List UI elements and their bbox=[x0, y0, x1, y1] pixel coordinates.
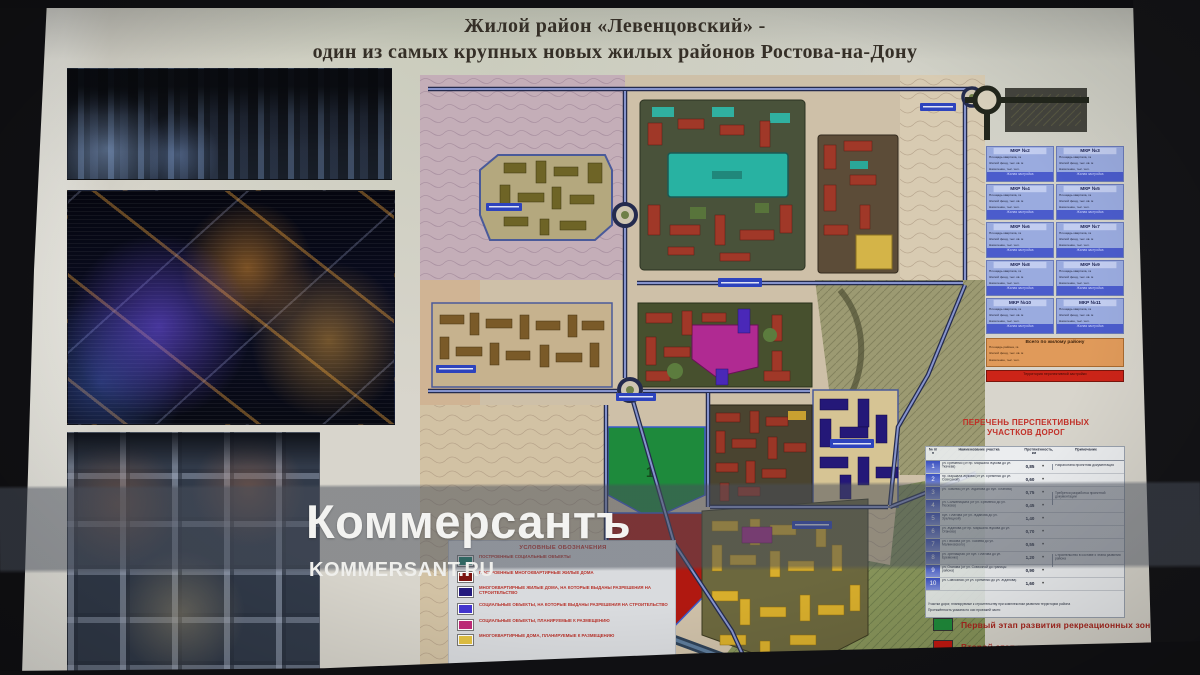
mkr-card: МКР №7Площадь квартала, гаЖилой фонд, ты… bbox=[1056, 222, 1124, 258]
poster-title-line2: один из самых крупных новых жилых районо… bbox=[225, 39, 1005, 65]
mkr-card-footer: Жилая застройка bbox=[987, 248, 1053, 257]
map-quarter-west bbox=[432, 303, 612, 387]
map-quarter-northeast bbox=[818, 135, 898, 273]
map-quarter-north-central bbox=[640, 100, 805, 270]
road-row-marker: • bbox=[1042, 578, 1050, 590]
mkr-summary-line: Жилой фонд, тыс. кв. м bbox=[989, 352, 1121, 355]
mkr-card-body: Площадь квартала, гаЖилой фонд, тыс. кв.… bbox=[987, 155, 1053, 172]
mkr-card-title: МКР №5 bbox=[1064, 186, 1117, 192]
mkr-card-footer: Жилая застройка bbox=[1057, 324, 1123, 333]
mkr-card: МКР №9Площадь квартала, гаЖилой фонд, ты… bbox=[1056, 260, 1124, 296]
map-quarter-northwest-built bbox=[480, 155, 612, 240]
road-note: Разработана проектная документация bbox=[1052, 464, 1124, 470]
road-row-name: ул. Совхозная (от ул. Еременко до ул. Жд… bbox=[940, 578, 1018, 590]
mkr-card-title: МКР №7 bbox=[1064, 224, 1117, 230]
legend-item: МНОГОКВАРТИРНЫЕ ЖИЛЫЕ ДОМА, НА КОТОРЫЕ В… bbox=[457, 586, 669, 600]
road-row-marker: • bbox=[1042, 461, 1050, 473]
mkr-card-title: МКР №10 bbox=[994, 300, 1047, 306]
mkr-summary-line: Население, тыс. чел. bbox=[989, 359, 1121, 362]
mkr-card-footer: Жилая застройка bbox=[1057, 248, 1123, 257]
legend-label: СОЦИАЛЬНЫЕ ОБЪЕКТЫ, НА КОТОРЫЕ ВЫДАНЫ РА… bbox=[479, 603, 669, 610]
photo-of-presentation-screen: Жилой район «Левенцовский» - один из сам… bbox=[0, 0, 1200, 675]
mkr-card-title: МКР №11 bbox=[1064, 300, 1117, 306]
mkr-card-title: МКР №3 bbox=[1064, 148, 1117, 154]
legend-label: СОЦИАЛЬНЫЕ ОБЪЕКТЫ, ПЛАНИРУЕМЫЕ К РАЗМЕЩ… bbox=[479, 619, 661, 626]
mkr-card-footer: Жилая застройка bbox=[987, 324, 1053, 333]
map-corner-junction bbox=[963, 70, 1095, 140]
roads-table-footnotes: Участки дорог, планируемые к строительст… bbox=[928, 603, 1122, 616]
mkr-summary-card: Всего по жилому району Площадь района, г… bbox=[986, 338, 1124, 367]
mkr-card: МКР №5Площадь квартала, гаЖилой фонд, ты… bbox=[1056, 184, 1124, 220]
roads-column-header: Примечание bbox=[1064, 447, 1107, 455]
masterplan-poster: Жилой район «Левенцовский» - один из сам… bbox=[0, 0, 1200, 675]
legend-swatch bbox=[457, 619, 474, 631]
mkr-card-body: Площадь квартала, гаЖилой фонд, тыс. кв.… bbox=[987, 307, 1053, 324]
mkr-cards-panel: МКР №2Площадь квартала, гаЖилой фонд, ты… bbox=[986, 146, 1126, 382]
roads-column-header: Наименование участка bbox=[956, 447, 1003, 455]
legend-label: МНОГОКВАРТИРНЫЕ ДОМА, ПЛАНИРУЕМЫЕ К РАЗМ… bbox=[479, 634, 667, 641]
poster-title: Жилой район «Левенцовский» - один из сам… bbox=[225, 13, 1005, 65]
mkr-card-title: МКР №2 bbox=[994, 148, 1047, 154]
stage-legend-swatch bbox=[933, 618, 953, 631]
mkr-card-title: МКР №9 bbox=[1064, 262, 1117, 268]
mkr-card-body: Площадь квартала, гаЖилой фонд, тыс. кв.… bbox=[987, 231, 1053, 248]
stage-legend-label: Первый этап развития рекреационных зон bbox=[961, 620, 1151, 630]
mkr-card: МКР №4Площадь квартала, гаЖилой фонд, ты… bbox=[986, 184, 1054, 220]
mkr-summary-banner: Территория перспективной застройки bbox=[986, 370, 1124, 382]
photo-aerial-night bbox=[67, 190, 395, 425]
mkr-card-row: МКР №2Площадь квартала, гаЖилой фонд, ты… bbox=[986, 146, 1126, 182]
road-row-length: 0,85 bbox=[1021, 463, 1039, 472]
mkr-card: МКР №11Площадь квартала, гаЖилой фонд, т… bbox=[1056, 298, 1124, 334]
legend-label: ПОСТРОЕННЫЕ МНОГОКВАРТИРНЫЕ ЖИЛЫЕ ДОМА bbox=[479, 571, 638, 578]
map-quarter-central bbox=[638, 303, 812, 387]
mkr-card-title: МКР №8 bbox=[994, 262, 1047, 268]
mkr-card-footer: Жилая застройка bbox=[987, 172, 1053, 181]
mkr-card-body: Площадь квартала, гаЖилой фонд, тыс. кв.… bbox=[987, 193, 1053, 210]
legend-swatch bbox=[457, 634, 474, 646]
mkr-card-title: МКР №6 bbox=[994, 224, 1047, 230]
mkr-card: МКР №6Площадь квартала, гаЖилой фонд, ты… bbox=[986, 222, 1054, 258]
mkr-card: МКР №10Площадь квартала, гаЖилой фонд, т… bbox=[986, 298, 1054, 334]
legend-item: СОЦИАЛЬНЫЕ ОБЪЕКТЫ, ПЛАНИРУЕМЫЕ К РАЗМЕЩ… bbox=[457, 619, 669, 631]
roads-column-header: № п/п bbox=[929, 447, 937, 455]
legend-swatch bbox=[457, 603, 474, 615]
roads-column-header: Протяжённость, км bbox=[1024, 447, 1043, 455]
road-row-number: 10 bbox=[926, 578, 940, 590]
mkr-card-footer: Жилая застройка bbox=[1057, 286, 1123, 295]
road-footnote: Участки дорог, планируемые к строительст… bbox=[928, 603, 1122, 607]
road-row-length: 1,60 bbox=[1021, 580, 1039, 589]
roads-table-title: ПЕРЕЧЕНЬ ПЕРСПЕКТИВНЫХ УЧАСТКОВ ДОРОГ bbox=[928, 418, 1124, 438]
mkr-card-row: МКР №6Площадь квартала, гаЖилой фонд, ты… bbox=[986, 222, 1126, 258]
photo-aerial-day bbox=[67, 68, 392, 180]
mkr-card-footer: Жилая застройка bbox=[987, 286, 1053, 295]
legend-item: СОЦИАЛЬНЫЕ ОБЪЕКТЫ, НА КОТОРЫЕ ВЫДАНЫ РА… bbox=[457, 603, 669, 615]
mkr-card: МКР №2Площадь квартала, гаЖилой фонд, ты… bbox=[986, 146, 1054, 182]
mkr-card: МКР №8Площадь квартала, гаЖилой фонд, ты… bbox=[986, 260, 1054, 296]
kommersant-site-label: KOMMERSANT.RU bbox=[309, 559, 495, 582]
road-footnote: Протяжённость указана по оси проезжей ча… bbox=[928, 609, 1122, 613]
mkr-card-body: Площадь квартала, гаЖилой фонд, тыс. кв.… bbox=[987, 269, 1053, 286]
mkr-card-body: Площадь квартала, гаЖилой фонд, тыс. кв.… bbox=[1057, 269, 1123, 286]
mkr-card-footer: Жилая застройка bbox=[1057, 172, 1123, 181]
mkr-card-body: Площадь квартала, гаЖилой фонд, тыс. кв.… bbox=[1057, 307, 1123, 324]
roads-table-header: № п/пНаименование участкаПротяжённость, … bbox=[926, 447, 1124, 461]
mkr-card-body: Площадь квартала, гаЖилой фонд, тыс. кв.… bbox=[1057, 231, 1123, 248]
road-row-number: 1 bbox=[926, 461, 940, 473]
kommersant-wordmark: Коммерсантъ bbox=[306, 494, 631, 549]
mkr-card-body: Площадь квартала, гаЖилой фонд, тыс. кв.… bbox=[1057, 193, 1123, 210]
mkr-summary-line: Площадь района, га bbox=[989, 346, 1121, 349]
mkr-summary-title: Всего по жилому району bbox=[1002, 340, 1108, 345]
legend-item: МНОГОКВАРТИРНЫЕ ДОМА, ПЛАНИРУЕМЫЕ К РАЗМ… bbox=[457, 634, 669, 646]
legend-swatch bbox=[457, 586, 474, 598]
mkr-card-row: МКР №8Площадь квартала, гаЖилой фонд, ты… bbox=[986, 260, 1126, 296]
mkr-card: МКР №3Площадь квартала, гаЖилой фонд, ты… bbox=[1056, 146, 1124, 182]
mkr-card-row: МКР №10Площадь квартала, гаЖилой фонд, т… bbox=[986, 298, 1126, 334]
mkr-card-body: Площадь квартала, гаЖилой фонд, тыс. кв.… bbox=[1057, 155, 1123, 172]
mkr-cards-grid: МКР №2Площадь квартала, гаЖилой фонд, ты… bbox=[986, 146, 1126, 334]
mkr-card-footer: Жилая застройка bbox=[1057, 210, 1123, 219]
mkr-card-row: МКР №4Площадь квартала, гаЖилой фонд, ты… bbox=[986, 184, 1126, 220]
road-row-name: ул. Еременко (от пр. Маршала Жукова до у… bbox=[940, 461, 1018, 473]
poster-title-line1: Жилой район «Левенцовский» - bbox=[225, 13, 1005, 39]
mkr-card-title: МКР №4 bbox=[994, 186, 1047, 192]
mkr-card-footer: Жилая застройка bbox=[987, 210, 1053, 219]
legend-label: МНОГОКВАРТИРНЫЕ ЖИЛЫЕ ДОМА, НА КОТОРЫЕ В… bbox=[479, 586, 669, 600]
